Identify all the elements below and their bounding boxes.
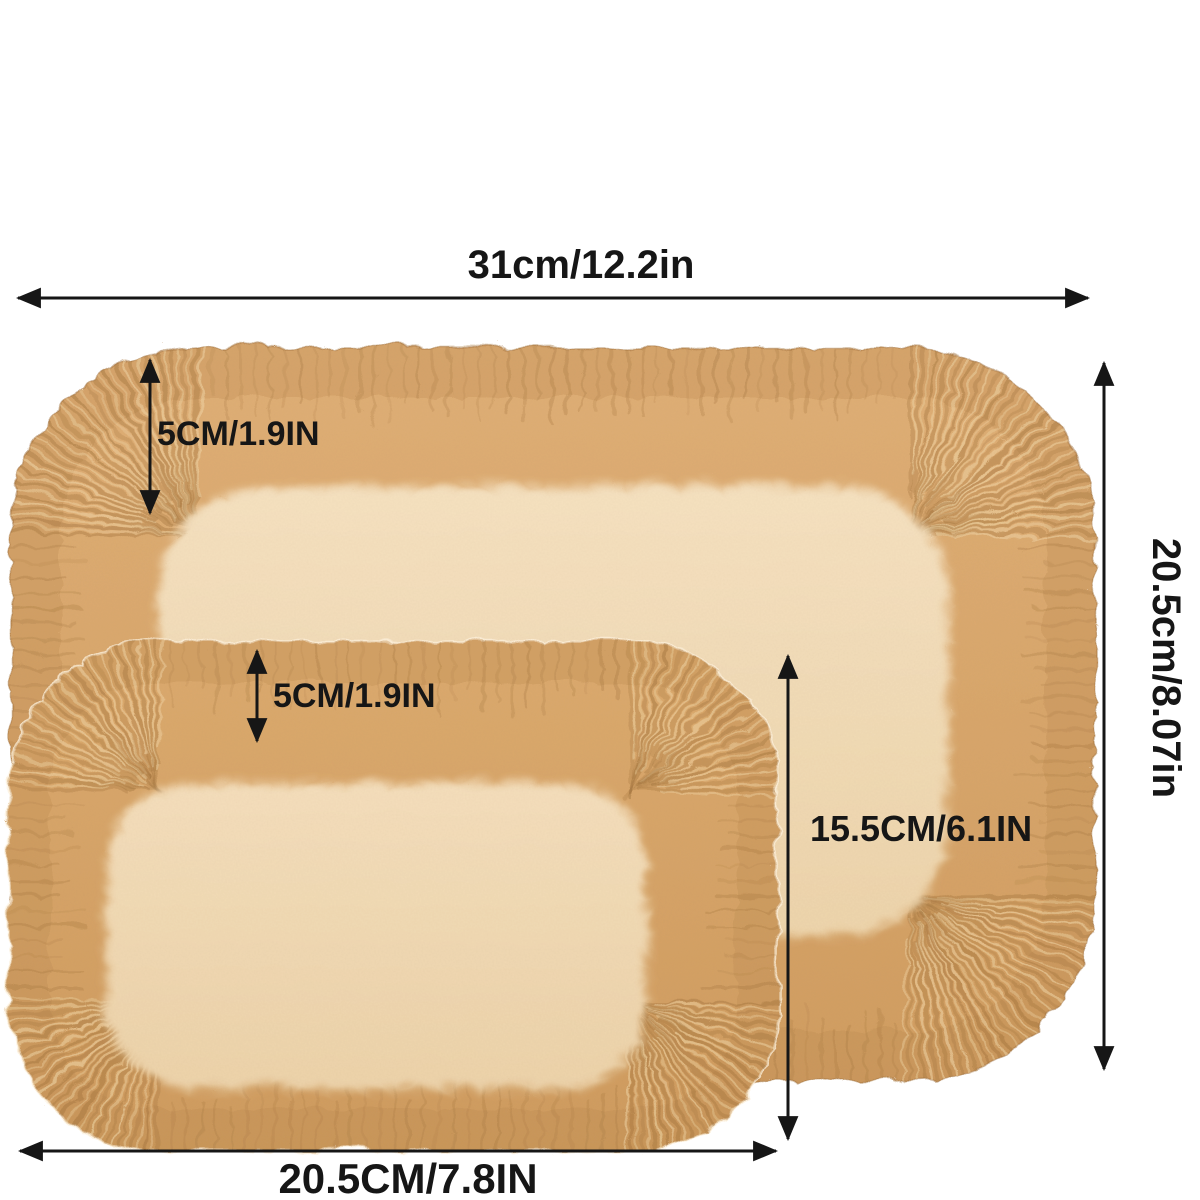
label-top-width: 31cm/12.2in	[468, 243, 695, 287]
label-small-rim-depth: 5CM/1.9IN	[273, 677, 436, 715]
label-inner-height: 15.5CM/6.1IN	[810, 808, 1032, 849]
label-bottom-width: 20.5CM/7.8IN	[278, 1155, 537, 1200]
product-dimension-diagram: 31cm/12.2in 5CM/1.9IN 5CM/1.9IN 15.5CM/6…	[0, 0, 1200, 1200]
diagram-canvas: 31cm/12.2in 5CM/1.9IN 5CM/1.9IN 15.5CM/6…	[0, 0, 1200, 1200]
small-liner-base	[103, 780, 645, 1086]
label-large-rim-depth: 5CM/1.9IN	[157, 415, 320, 453]
label-side-height: 20.5cm/8.07in	[1144, 538, 1188, 798]
